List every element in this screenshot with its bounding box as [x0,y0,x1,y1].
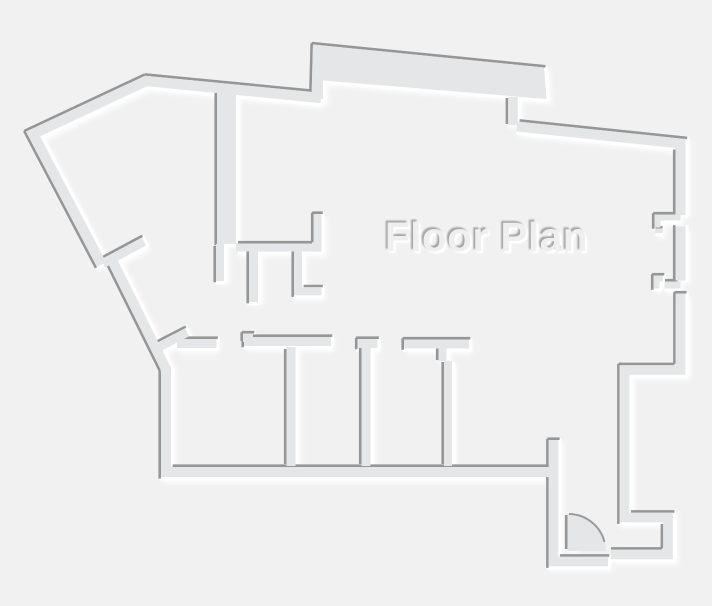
svg-text:Floor Plan: Floor Plan [385,214,588,260]
